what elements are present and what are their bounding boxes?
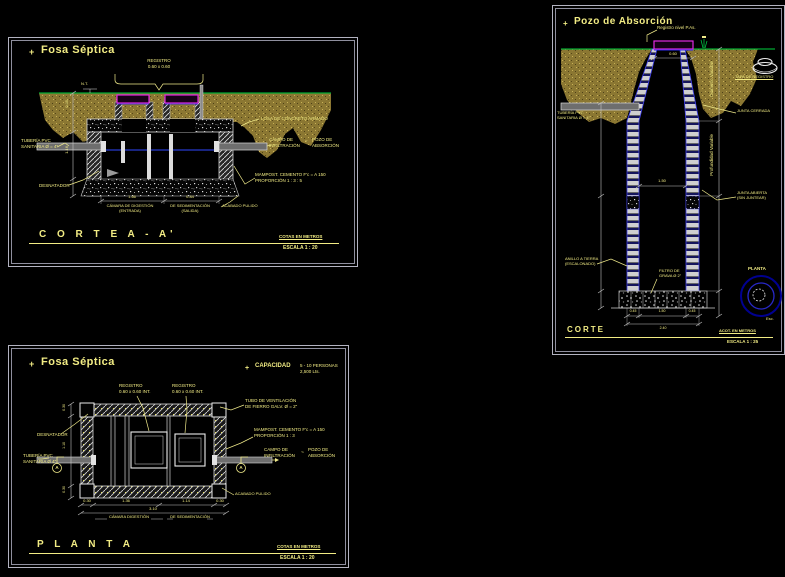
cotas-note: COTAS EN METROS — [279, 234, 322, 239]
vent-pipe — [200, 85, 203, 119]
cut-letter-right: A — [239, 465, 242, 470]
camara-izquierda-label: CÁMARA DIGESTIÓN — [109, 515, 149, 520]
registro-left-label: REGISTRO 0.60 x 0.60 INT. — [119, 383, 151, 394]
drawing-title: Fosa Séptica — [41, 356, 115, 368]
inlet-pipe — [561, 103, 639, 110]
registro-right-label: REGISTRO 0.60 x 0.60 INT. — [172, 383, 204, 394]
mamposteria-line2: PROPORCIÓN 1 : 3 — [254, 433, 325, 439]
tapa-icon — [753, 59, 777, 74]
pozo-line2: ABSORCIÓN — [308, 453, 335, 459]
tuberia-line2: SANITARIA Ø = 4" — [557, 116, 590, 121]
tuberia-label: TUBERÍA PVC SANITARIA Ø 4" — [23, 453, 56, 464]
vent-line2: DE FIERRO GALV. Ø = 2" — [245, 404, 297, 410]
plan-view-circles — [741, 276, 781, 316]
dim-width-1: 1.66 — [128, 195, 136, 199]
drawing-title: Fosa Séptica — [41, 44, 115, 56]
tuberia-line2: SANITARIA Ø 4" — [23, 459, 56, 465]
planta-drawing — [9, 346, 348, 567]
diametro-variable-label: Diámetro Variable — [709, 61, 714, 97]
plan-circle-label: PLANTA — [748, 266, 766, 272]
corner-column — [80, 484, 94, 498]
cut-letter-left: A — [55, 465, 58, 470]
pozo-absorcion-label: POZO DE ABSORCIÓN — [312, 137, 339, 148]
campo-infiltracion-label: CAMPO DE INFILTRACIÓN — [269, 137, 300, 148]
dim-inner: 1.50 — [658, 179, 666, 183]
tilde: ~ — [301, 451, 304, 457]
dim-b2: 1.50 — [659, 309, 666, 313]
tank-plan — [80, 403, 226, 498]
dim-height-1: 0.45 — [64, 100, 69, 108]
flow-arrow — [107, 169, 119, 177]
title-underline — [29, 243, 339, 244]
junta-abierta-label: JUNTA ABIERTA (SIN JUNTEAR) — [737, 191, 767, 201]
escala-note: ESCALA 1 : 25 — [727, 339, 758, 344]
dim-l2: 1.10 — [62, 442, 66, 449]
filtro-line2: GRAVA Ø 2" — [659, 274, 681, 279]
title-marker: + — [563, 19, 568, 28]
capacidad-label: CAPACIDAD — [255, 363, 291, 369]
junta-abierta-line2: (SIN JUNTEAR) — [737, 196, 767, 201]
corner-column — [212, 484, 226, 498]
camara-izquierda-label: CÁMARA DE DIGESTIÓN (ENTRADA) — [107, 204, 154, 214]
capacidad-marker: + — [245, 364, 249, 373]
registro-line1: REGISTRO — [147, 58, 171, 64]
anillo-label: ANILLO A TIERRA (ESCALONADO) — [565, 257, 598, 267]
mamposteria-line1: MAMPOST. CEMENTO F'c = A 150 — [255, 172, 326, 178]
dim-btotal: 2.40 — [660, 326, 667, 330]
registro-label: REGISTRO 0.60 x 0.60 — [147, 58, 171, 69]
camara-izq-line2: (ENTRADA) — [107, 209, 154, 214]
dim-l1: 0.30 — [62, 404, 66, 411]
dim-b4: 0.30 — [216, 499, 224, 503]
capacidad-personas: 5 - 10 PERSONAS — [300, 363, 338, 369]
title-underline — [565, 337, 773, 338]
tuberia-line2: SANITARIA Ø = 4" — [21, 144, 58, 150]
profundidad-variable-label: Profundidad Variable — [709, 134, 714, 176]
flow-arrowhead — [275, 458, 279, 462]
pozo-absorcion-label: POZO DE ABSORCIÓN — [308, 447, 335, 458]
cad-canvas: { "colors": { "text_yellow": "#f2ec84", … — [0, 0, 785, 577]
campo-line2: INFILTRACIÓN — [269, 143, 300, 149]
registro-line2: 0.60 x 0.60 — [147, 64, 171, 70]
section-title-corte-aa: C O R T E A - A' — [39, 229, 177, 240]
dim-b2: 1.36 — [122, 499, 130, 503]
section-title-planta: P L A N T A — [37, 539, 134, 550]
escala-note: ESCALA 1 : 20 — [283, 245, 318, 251]
desnatador-label: DESNATADOR — [39, 183, 70, 189]
dim-b1: 0.45 — [630, 309, 637, 313]
dim-width-2: 0.84 — [186, 195, 194, 199]
mamposteria-line1: MAMPOST. CEMENTO F'c = A 150 — [254, 427, 325, 433]
right-brick-column — [680, 49, 699, 291]
acabado-label: ACABADO PULIDO — [222, 204, 258, 209]
acotaciones-note: ACOT. EN METROS — [719, 328, 756, 333]
capacidad-litros: 2,500 Lts. — [300, 369, 320, 375]
dim-b3: 1.14 — [182, 499, 190, 503]
pozo-drawing — [553, 6, 784, 354]
camara-der-line2: (SALIDA) — [170, 209, 210, 214]
nt-label: N.T. — [81, 82, 88, 87]
tuberia-label: TUBERÍA PVC SANITARIA Ø = 4" — [557, 111, 590, 121]
mamposteria-line2: PROPORCIÓN 1 : 3 : 5 — [255, 178, 326, 184]
section-title-corte: CORTE — [567, 325, 605, 334]
mamposteria-label: MAMPOST. CEMENTO F'c = A 150 PROPORCIÓN … — [255, 172, 326, 183]
anillo-line2: (ESCALONADO) — [565, 262, 598, 267]
registro2-line2: 0.60 x 0.60 INT. — [172, 389, 204, 395]
partition-2 — [169, 134, 173, 179]
dim-btotal: 3.10 — [149, 507, 157, 511]
dim-b1: 0.30 — [83, 499, 91, 503]
top-slab — [87, 119, 233, 132]
dim-height-2: 1.16 — [64, 146, 69, 154]
partition-1 — [147, 134, 151, 179]
dim-neck: 0.60 — [669, 52, 677, 56]
title-marker: + — [29, 360, 34, 369]
escala-note: ESCALA 1 : 20 — [280, 555, 315, 561]
tapa-label: TAPA DE REGISTRO — [735, 75, 773, 80]
panel-fosa-septica-corte: + Fosa Séptica REGISTRO 0.60 x 0.60 N.T.… — [8, 37, 358, 267]
dim-b3: 0.45 — [689, 309, 696, 313]
registro-lid — [654, 41, 693, 50]
esc-label: Esc. — [766, 317, 774, 322]
corner-column — [212, 403, 226, 417]
filtro-label: FILTRO DE GRAVA Ø 2" — [659, 269, 681, 279]
campo-infiltracion-label: CAMPO DE INFILTRACIÓN — [264, 447, 295, 458]
registro-label: Registro nivel P.As. — [657, 25, 696, 31]
gravel-base — [619, 291, 707, 308]
partition-2 — [125, 416, 129, 486]
tuberia-label: TUBERÍA PVC SANITARIA Ø = 4" — [21, 138, 58, 149]
bottom-slab — [81, 179, 239, 196]
panel-fosa-septica-planta: + Fosa Séptica + CAPACIDAD 5 - 10 PERSON… — [8, 345, 349, 568]
pozo-line2: ABSORCIÓN — [312, 143, 339, 149]
tuberia-line1: TUBERÍA PVC — [23, 453, 56, 459]
camara-derecha-label: DE SEDIMENTACIÓN — [170, 515, 210, 520]
campo-line2: INFILTRACIÓN — [264, 453, 295, 459]
desnatador-label: DESNATADOR — [37, 432, 68, 438]
losa-label: LOSA DE CONCRETO ARMADO — [261, 116, 328, 122]
junta-cerrada-label: JUNTA CERRADA — [737, 109, 770, 114]
dim-l3: 0.30 — [62, 486, 66, 493]
camara-derecha-label: DE SEDIMENTACIÓN (SALIDA) — [170, 204, 210, 214]
panel-pozo-absorcion: + Pozo de Absorción Registro nivel P.As.… — [552, 5, 785, 355]
tilde: ~ — [305, 140, 308, 146]
cotas-note: COTAS EN METROS — [277, 544, 320, 549]
baffle — [121, 141, 125, 163]
registro1-line2: 0.60 x 0.60 INT. — [119, 389, 151, 395]
ventilacion-label: TUBO DE VENTILACIÓN DE FIERRO GALV. Ø = … — [245, 398, 297, 409]
vent-line1: TUBO DE VENTILACIÓN — [245, 398, 297, 404]
mamposteria-label: MAMPOST. CEMENTO F'c = A 150 PROPORCIÓN … — [254, 427, 325, 438]
grass-symbol — [701, 36, 707, 48]
title-underline — [29, 553, 336, 554]
acabado-label: ACABADO PULIDO — [235, 492, 271, 497]
partition-1 — [111, 416, 115, 486]
title-marker: + — [29, 48, 34, 57]
